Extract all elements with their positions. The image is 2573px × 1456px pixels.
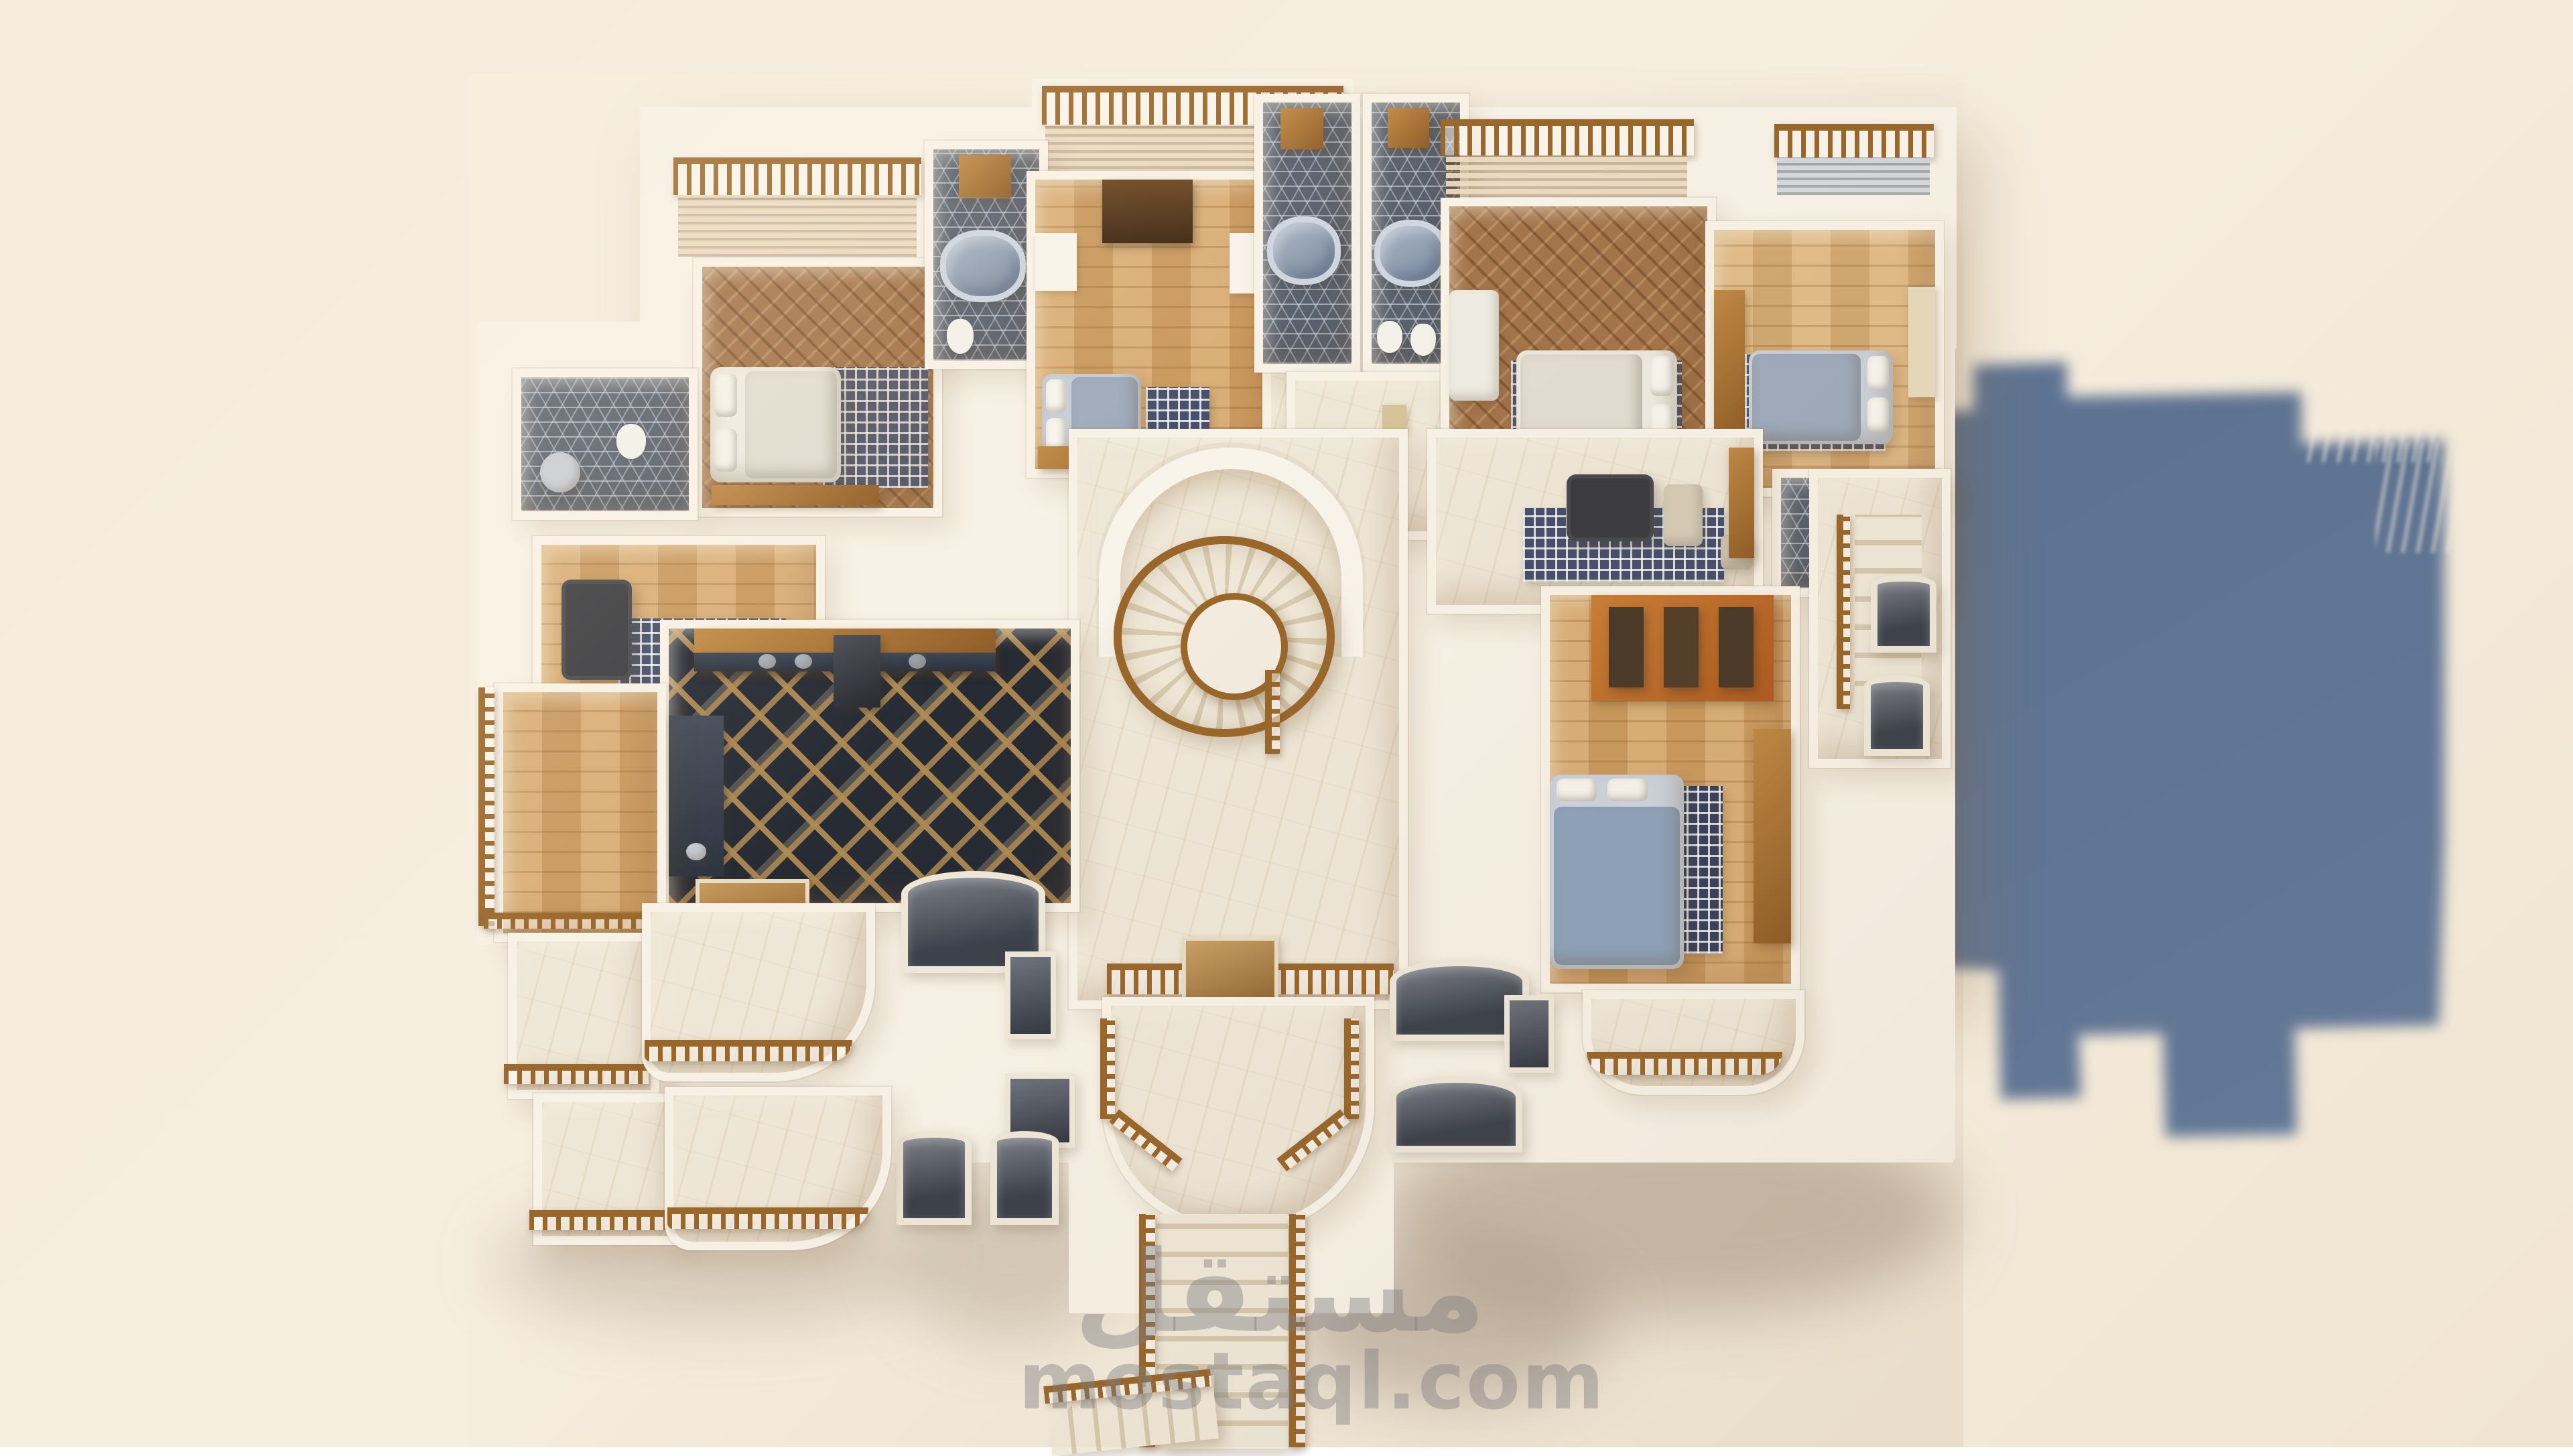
media-sideboard — [1754, 729, 1791, 943]
bidet — [1410, 324, 1436, 356]
terrace-west — [494, 683, 666, 942]
wardrobe-door — [1609, 607, 1644, 687]
kitchen-island — [669, 716, 724, 876]
toilet — [1377, 321, 1402, 353]
balcony-railing-northeast — [1441, 119, 1694, 155]
balcony-deck-fareast — [1777, 157, 1930, 195]
bedroom-northwest-bench — [712, 485, 879, 505]
wardrobe-orange — [1591, 595, 1774, 701]
bathtub — [1267, 216, 1341, 285]
balcony-curved-1-rail — [645, 1040, 852, 1061]
spiral-rail-tail — [1265, 670, 1280, 754]
balcony-deck-northeast — [1446, 155, 1687, 197]
balcony-west-1-rail — [504, 1064, 649, 1084]
loveseat-white — [1449, 290, 1499, 401]
bathtub — [1374, 220, 1448, 287]
pillow — [1046, 379, 1066, 413]
watermark-site-text: mostaql.com — [1018, 1335, 1541, 1427]
bath-vanity — [1388, 108, 1429, 148]
bedroom-east-bed — [1749, 350, 1893, 444]
balcony-railing-topleft — [673, 157, 921, 195]
bath-vanity — [1280, 108, 1323, 149]
refrigerator — [834, 635, 880, 708]
sofa — [1567, 474, 1654, 541]
wood-screen — [1729, 448, 1754, 558]
facade-window-stair-left — [1005, 951, 1056, 1039]
archviz-scene: مستقل mostaql.com — [0, 0, 2573, 1447]
railing-light-streaks-2 — [2375, 442, 2459, 553]
bath-vanity — [959, 155, 1011, 198]
pillow — [714, 429, 737, 472]
bathroom-center-1 — [1254, 94, 1360, 373]
bath-stool — [540, 452, 580, 492]
bedroom-southeast — [1541, 586, 1800, 992]
balcony-railing-fareast — [1774, 124, 1934, 157]
side-arch-window — [1871, 575, 1936, 653]
pillow — [1557, 779, 1597, 801]
balcony-curved-east-rail — [1587, 1052, 1782, 1075]
kitchen-hob — [909, 654, 926, 669]
side-arch-window-2 — [1864, 675, 1930, 756]
pillow — [1867, 397, 1889, 432]
landing-rail-right — [1344, 1018, 1359, 1119]
kitchen-sink-2 — [795, 654, 812, 669]
balcony-deck-topleft — [678, 195, 917, 257]
pillow — [1867, 356, 1889, 391]
facade-arch-window-small-2 — [990, 1131, 1059, 1225]
landing-rail-left — [1100, 1018, 1115, 1119]
balcony-curved-2-rail — [667, 1207, 868, 1229]
window-seat — [1908, 287, 1935, 397]
facade-window-far-east — [1504, 995, 1554, 1073]
terrace-rail-bottom — [484, 913, 651, 929]
stairwell-east-rail — [1837, 515, 1850, 709]
facade-arch-window-small — [897, 1131, 972, 1225]
cabinet-white — [1035, 233, 1077, 291]
armchair-dark — [562, 580, 632, 680]
bedroom-northwest-bed — [710, 367, 841, 482]
pillow — [714, 374, 737, 417]
bedroom-southeast-bed — [1550, 775, 1684, 969]
toilet — [947, 319, 974, 354]
door-recess — [1102, 180, 1193, 243]
wardrobe-plank — [1714, 290, 1745, 444]
facade-arch-window-east-2 — [1390, 1076, 1522, 1152]
bedroom-northwest — [694, 258, 942, 517]
wardrobe-door-2 — [1664, 607, 1699, 687]
pillow — [1607, 779, 1648, 801]
island-sink — [686, 843, 706, 860]
accent-chair — [1664, 484, 1703, 546]
bathroom-west — [513, 369, 698, 520]
kitchen — [660, 620, 1079, 912]
bathtub — [940, 230, 1026, 302]
blanket — [1554, 807, 1680, 965]
blanket — [1752, 354, 1861, 441]
terrace-rail-left — [478, 687, 494, 926]
wardrobe-door-3 — [1719, 607, 1754, 687]
balcony-curved-east — [1583, 990, 1804, 1095]
kitchen-sink — [758, 654, 776, 669]
pillow — [1650, 356, 1673, 396]
toilet — [616, 424, 646, 459]
balcony-west-2-rail — [529, 1210, 671, 1230]
blanket — [745, 371, 837, 478]
